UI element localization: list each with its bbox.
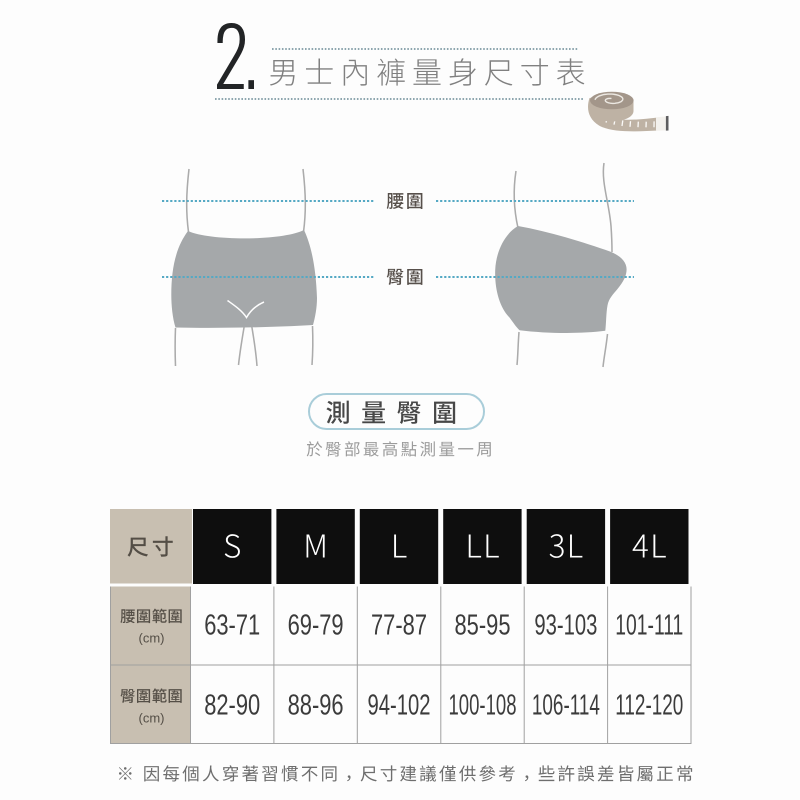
svg-text:93-103: 93-103 xyxy=(534,608,597,640)
svg-text:85-95: 85-95 xyxy=(455,608,511,640)
svg-text:(cm): (cm) xyxy=(139,710,165,725)
svg-text:63-71: 63-71 xyxy=(204,608,260,640)
svg-text:77-87: 77-87 xyxy=(371,608,427,640)
svg-text:69-79: 69-79 xyxy=(288,608,344,640)
svg-text:82-90: 82-90 xyxy=(204,688,260,720)
svg-text:(cm): (cm) xyxy=(139,631,165,646)
svg-text:106-114: 106-114 xyxy=(532,688,600,720)
svg-text:100-108: 100-108 xyxy=(449,688,517,720)
svg-text:94-102: 94-102 xyxy=(368,688,431,720)
svg-text:112-120: 112-120 xyxy=(615,688,683,720)
svg-text:88-96: 88-96 xyxy=(288,688,344,720)
svg-text:101-111: 101-111 xyxy=(615,608,683,640)
